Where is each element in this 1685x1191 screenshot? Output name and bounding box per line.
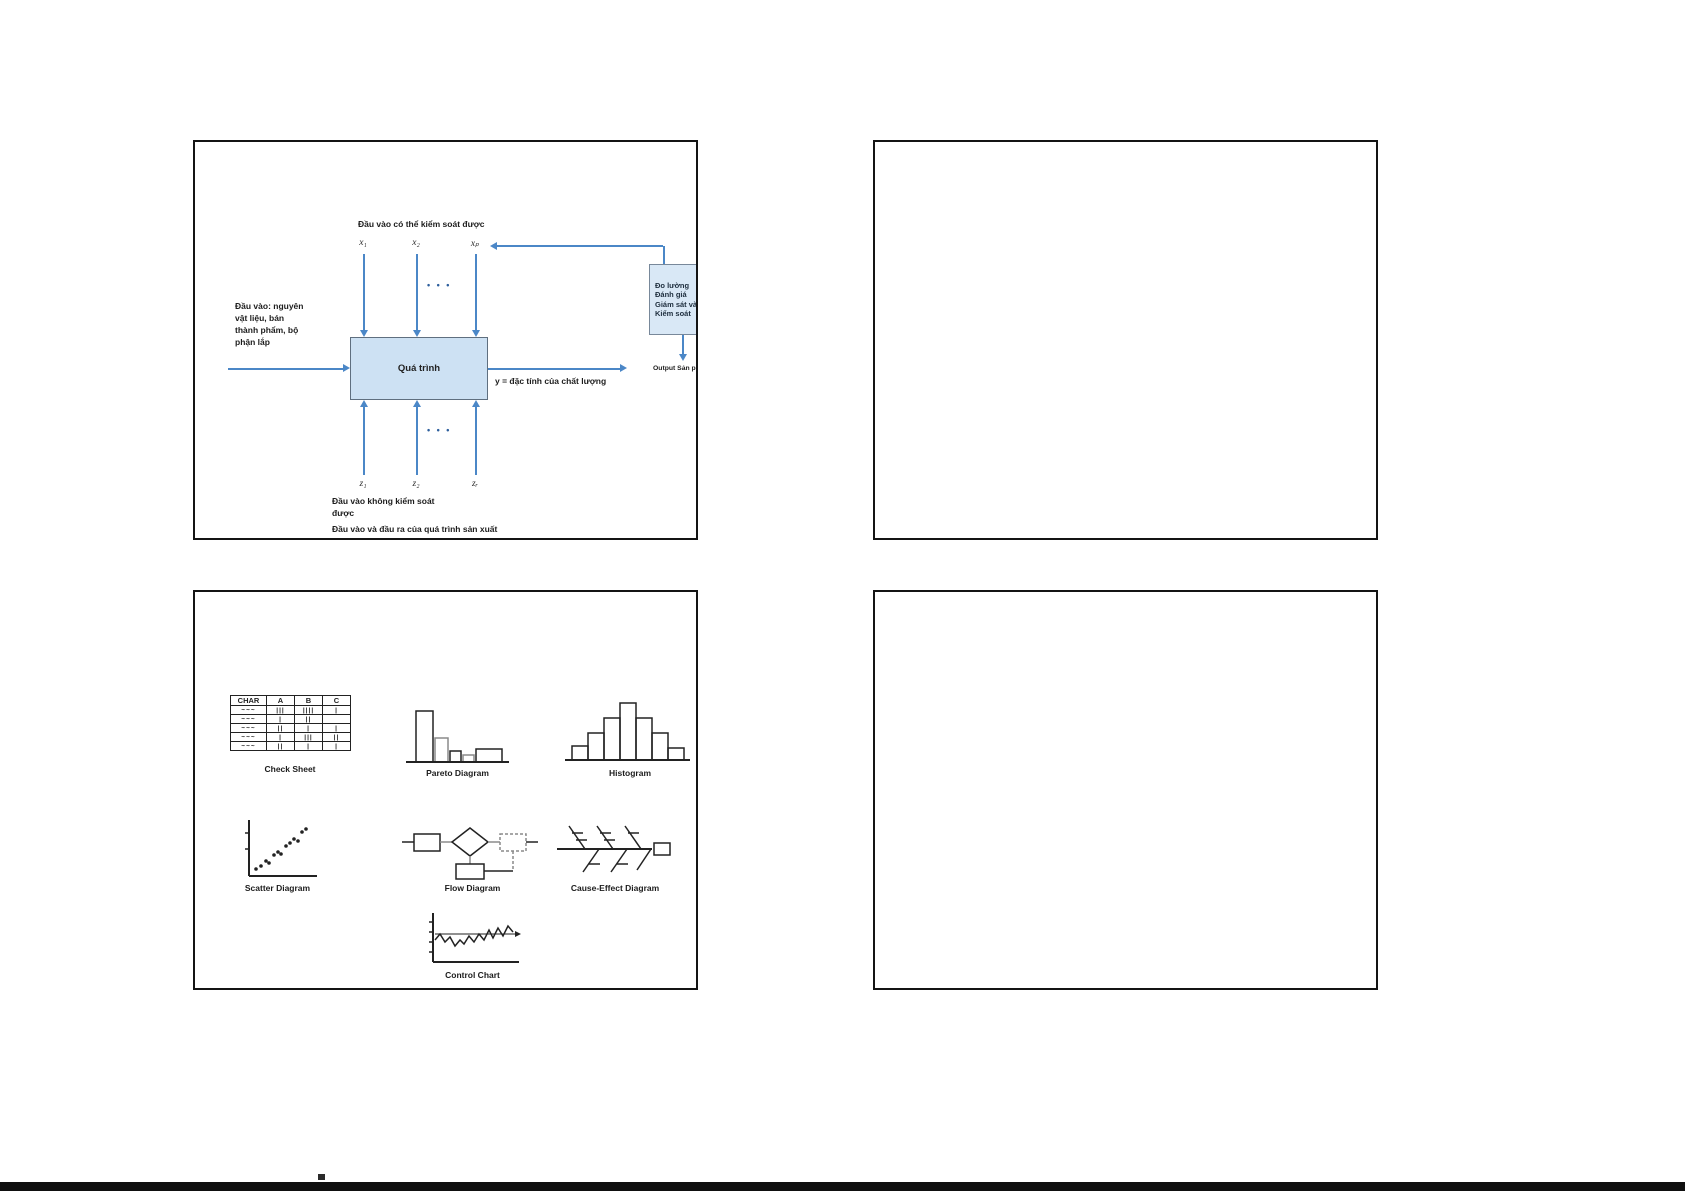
control-chart-icon: [423, 910, 523, 968]
check-sheet-header: A: [267, 696, 295, 706]
histogram-icon: [565, 697, 690, 765]
pareto-diagram-icon: [405, 707, 510, 769]
measure-output-arrowhead-icon: [679, 354, 687, 361]
feedback-line-horizontal: [497, 245, 663, 247]
control-chart-label: Control Chart: [400, 970, 545, 980]
check-sheet-cell: |: [267, 715, 295, 724]
process-box-label: Quá trình: [398, 363, 440, 374]
z1-arrowhead-icon: [360, 400, 368, 407]
z2-arrow-line: [416, 407, 418, 475]
table-row: ~~~ || | |: [231, 724, 351, 733]
check-sheet-cell: |||: [267, 706, 295, 715]
feedback-arrowhead-icon: [490, 242, 497, 250]
check-sheet-cell: ||: [267, 742, 295, 751]
feedback-line-vertical: [663, 246, 665, 265]
check-sheet-cell: ~~~: [231, 733, 267, 742]
flow-diagram-label: Flow Diagram: [420, 883, 525, 893]
slide-process-diagram: Đầu vào có thể kiểm soát được x₁ x₂ xₚ •…: [193, 140, 698, 540]
check-sheet-cell: |: [295, 724, 323, 733]
zr-arrowhead-icon: [472, 400, 480, 407]
check-sheet-header: C: [323, 696, 351, 706]
var-zr: zᵣ: [468, 479, 482, 489]
uncontrollable-inputs-label-line2: được: [332, 507, 354, 519]
input-arrow-line: [228, 368, 343, 370]
controllable-inputs-label: Đầu vào có thể kiểm soát được: [358, 218, 485, 230]
measure-box-line: Kiểm soát: [655, 309, 698, 319]
output-product-label: Output Sản phẩm: [653, 363, 698, 375]
check-sheet-cell: |: [323, 742, 351, 751]
check-sheet-cell: ||: [323, 733, 351, 742]
check-sheet-cell: |: [267, 733, 295, 742]
table-row: ~~~ ||| |||| |: [231, 706, 351, 715]
cause-effect-diagram-icon: [555, 820, 675, 878]
check-sheet-cell: |||: [295, 733, 323, 742]
input-description-line: vật liệu, bán: [235, 312, 284, 324]
slide-blank-top-right: [873, 140, 1378, 540]
flow-diagram-icon: [400, 820, 545, 880]
measure-output-arrow-line: [682, 335, 684, 354]
check-sheet-label: Check Sheet: [215, 764, 365, 774]
x1-arrow-line: [363, 254, 365, 330]
check-sheet-cell: ~~~: [231, 724, 267, 733]
histogram-label: Histogram: [580, 768, 680, 778]
measure-box-line: Đo lường: [655, 281, 698, 291]
check-sheet-cell: [323, 715, 351, 724]
var-x1: x₁: [356, 238, 370, 248]
check-sheet-cell: |: [323, 706, 351, 715]
z1-arrow-line: [363, 407, 365, 475]
xp-arrow-line: [475, 254, 477, 330]
output-arrow-line: [488, 368, 620, 370]
x2-arrowhead-icon: [413, 330, 421, 337]
check-sheet-cell: ~~~: [231, 742, 267, 751]
var-z2: z₂: [409, 479, 423, 489]
cause-effect-diagram-label: Cause-Effect Diagram: [540, 883, 690, 893]
zr-arrow-line: [475, 407, 477, 475]
measure-box-line: Đánh giá: [655, 290, 698, 300]
slide-blank-bottom-right: [873, 590, 1378, 990]
xp-arrowhead-icon: [472, 330, 480, 337]
x2-arrow-line: [416, 254, 418, 330]
measure-box-line: Giám sát và: [655, 300, 698, 310]
measure-control-box: Đo lường Đánh giá Giám sát và Kiểm soát: [649, 264, 698, 335]
x1-arrowhead-icon: [360, 330, 368, 337]
input-description-line: Đầu vào: nguyên: [235, 300, 303, 312]
slide-quality-tools: CHAR A B C ~~~ ||| |||| | ~~~ | || ~~~ |…: [193, 590, 698, 990]
check-sheet-cell: ||||: [295, 706, 323, 715]
var-z1: z₁: [356, 479, 370, 489]
check-sheet-cell: ~~~: [231, 706, 267, 715]
footer-bar: [0, 1182, 1685, 1191]
check-sheet-cell: |: [295, 742, 323, 751]
check-sheet-cell: ~~~: [231, 715, 267, 724]
ellipsis-bottom: • • •: [427, 425, 451, 435]
z2-arrowhead-icon: [413, 400, 421, 407]
input-description-line: thành phẩm, bộ: [235, 324, 298, 336]
input-arrowhead-icon: [343, 364, 350, 372]
check-sheet-cell: ||: [295, 715, 323, 724]
process-box: Quá trình: [350, 337, 488, 400]
uncontrollable-inputs-label-line1: Đầu vào không kiểm soát: [332, 495, 435, 507]
quality-characteristic-label: y = đặc tính của chất lượng: [495, 375, 606, 387]
var-xp: xₚ: [468, 238, 482, 249]
input-description-line: phận lắp: [235, 336, 270, 348]
table-row: ~~~ | ||| ||: [231, 733, 351, 742]
var-x2: x₂: [409, 238, 423, 248]
check-sheet-cell: ||: [267, 724, 295, 733]
figure-caption: Đầu vào và đầu ra của quá trình sản xuất: [332, 523, 497, 535]
footer-mark: [318, 1174, 325, 1180]
ellipsis-top: • • •: [427, 280, 451, 290]
check-sheet-table: CHAR A B C ~~~ ||| |||| | ~~~ | || ~~~ |…: [230, 695, 351, 751]
table-row: ~~~ | ||: [231, 715, 351, 724]
document-page: Đầu vào có thể kiểm soát được x₁ x₂ xₚ •…: [0, 0, 1685, 1191]
pareto-diagram-label: Pareto Diagram: [390, 768, 525, 778]
scatter-diagram-label: Scatter Diagram: [215, 883, 340, 893]
check-sheet-header: CHAR: [231, 696, 267, 706]
check-sheet-header: B: [295, 696, 323, 706]
output-arrowhead-icon: [620, 364, 627, 372]
table-row: ~~~ || | |: [231, 742, 351, 751]
scatter-diagram-icon: [235, 817, 320, 880]
check-sheet-cell: |: [323, 724, 351, 733]
